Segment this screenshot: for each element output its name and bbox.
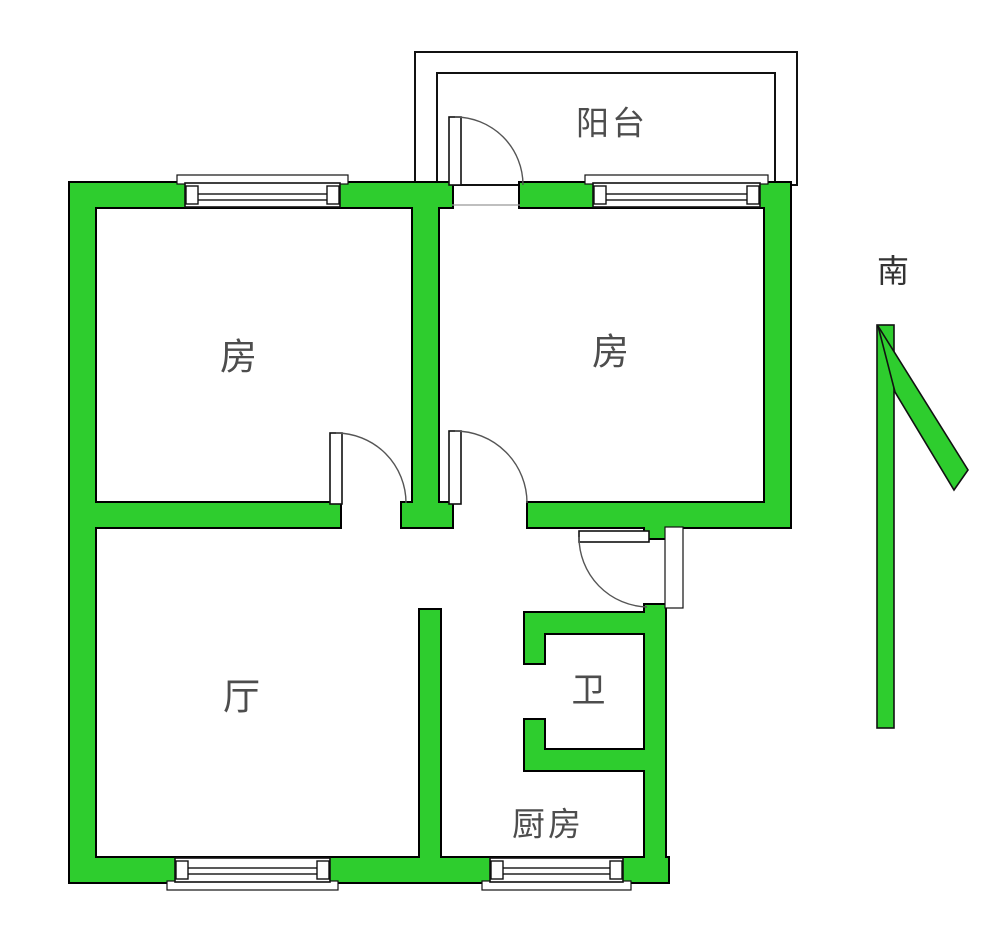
bathroom-bottom-wall <box>530 750 645 770</box>
window-body <box>490 858 623 882</box>
bedrooms-divider-wall <box>413 183 438 507</box>
bathroom-top-wall <box>530 613 645 633</box>
compass-arrow <box>877 325 968 728</box>
bathroom-label: 卫 <box>572 671 609 711</box>
bedrooms-bottom-wall-left <box>70 503 340 527</box>
door-swing-arc <box>579 537 647 607</box>
bedroom-left-door <box>330 433 406 504</box>
window-end-block <box>176 861 188 879</box>
bedroom-right-window <box>585 175 768 207</box>
window-end-block <box>610 861 622 879</box>
south-compass: 南 <box>877 252 968 728</box>
window-end-block <box>327 186 339 204</box>
entrance-door-frame <box>665 527 683 608</box>
door-swing-arc <box>336 433 406 503</box>
living-kitchen-divider <box>420 610 440 882</box>
compass-arrow-shaft <box>877 325 894 728</box>
window-end-block <box>491 861 503 879</box>
living-room-window <box>167 858 338 890</box>
window-end-block <box>186 186 198 204</box>
bedroom-left-window <box>177 175 348 207</box>
window-body <box>593 183 760 207</box>
floorplan-svg: 南 阳台 房 房 厅 卫 厨房 <box>0 0 1000 940</box>
door-leaf <box>579 531 649 542</box>
kitchen-label: 厨房 <box>512 805 584 844</box>
door-leaf <box>449 117 461 185</box>
balcony-label: 阳台 <box>576 104 648 143</box>
compass-south-label: 南 <box>877 252 909 290</box>
bedroom-left-label: 房 <box>220 336 260 379</box>
bathroom-left-upper <box>525 613 544 663</box>
divider-foot <box>402 503 452 527</box>
window-body <box>185 183 340 207</box>
window-end-block <box>747 186 759 204</box>
kitchen-window <box>482 858 631 890</box>
left-wall <box>70 183 95 882</box>
door-leaf <box>330 433 342 504</box>
floorplan-canvas: 南 阳台 房 房 厅 卫 厨房 <box>0 0 1000 940</box>
window-body <box>175 858 330 882</box>
living-room-label: 厅 <box>223 676 263 719</box>
entrance-door <box>579 527 683 608</box>
bedroom-right-door <box>449 431 527 504</box>
right-wall <box>765 183 790 527</box>
bedroom-right-label: 房 <box>592 331 632 374</box>
kitchen-right-wall <box>645 605 665 882</box>
door-swing-arc <box>455 431 527 503</box>
door-leaf <box>449 431 461 504</box>
window-end-block <box>594 186 606 204</box>
window-end-block <box>317 861 329 879</box>
